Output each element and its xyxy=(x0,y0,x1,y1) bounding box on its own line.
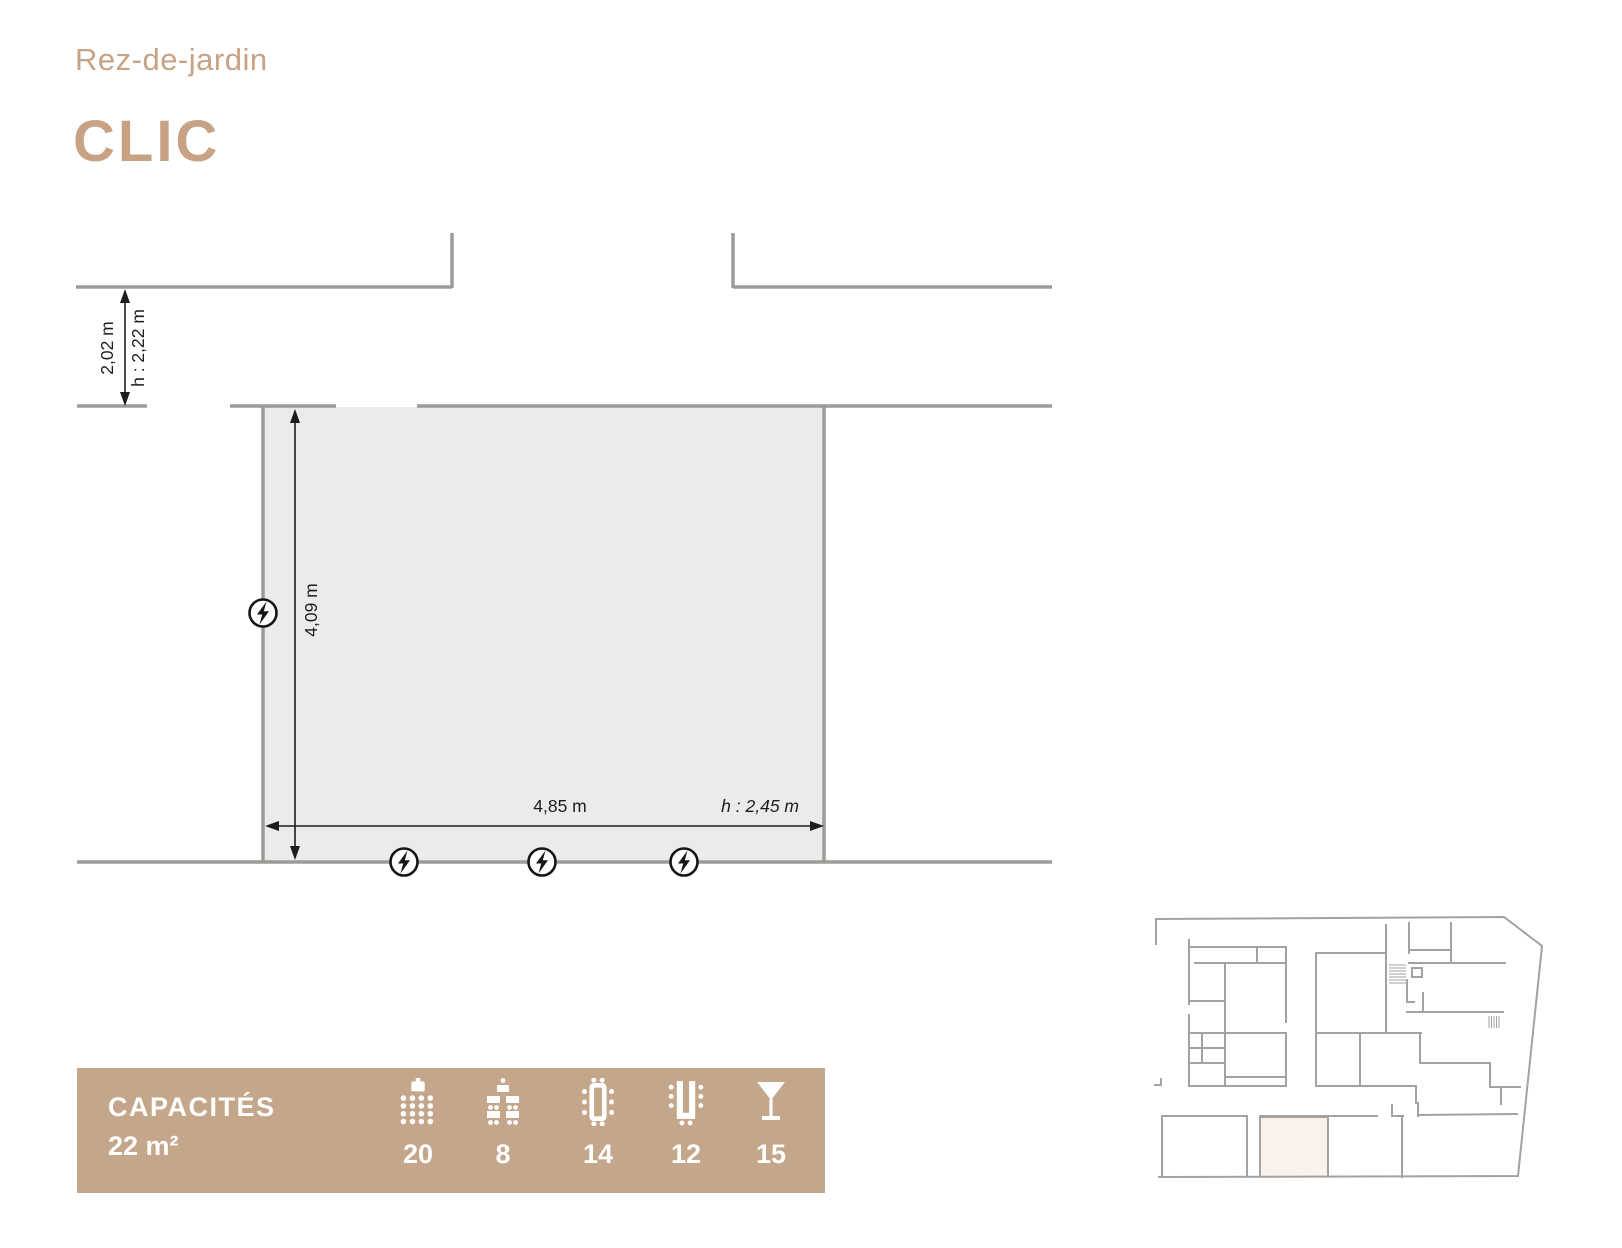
capacity-theatre: 20 xyxy=(383,1078,453,1168)
room-ceiling-dimension: h : 2,45 m xyxy=(721,796,799,816)
cocktail-icon xyxy=(756,1078,786,1126)
minimap-stairs-hatching xyxy=(1389,965,1499,1028)
power-outlet-icon xyxy=(391,849,418,876)
capacity-value: 12 xyxy=(651,1141,721,1168)
capacities-header: CAPACITÉS 22 m² xyxy=(108,1094,276,1160)
capacity-boardroom: 14 xyxy=(563,1078,633,1168)
corridor-height-dimension: h : 2,22 m xyxy=(128,309,148,387)
boardroom-icon xyxy=(580,1078,616,1126)
power-outlet-icon xyxy=(529,849,556,876)
capacity-cocktail: 15 xyxy=(736,1078,806,1168)
page: Rez-de-jardin CLIC 2,02 m h : 2,22 m 4,0… xyxy=(0,0,1622,1248)
room-area: 22 m² xyxy=(108,1133,276,1160)
capacity-value: 8 xyxy=(468,1141,538,1168)
power-outlet-icon xyxy=(250,600,277,627)
ushape-icon xyxy=(668,1078,704,1126)
capacities-title: CAPACITÉS xyxy=(108,1094,276,1121)
building-minimap xyxy=(1140,905,1560,1205)
room-width-dimension: 4,85 m xyxy=(533,796,587,816)
capacity-classroom: 8 xyxy=(468,1078,538,1168)
capacity-value: 20 xyxy=(383,1141,453,1168)
theater-icon xyxy=(399,1078,437,1126)
room-fill xyxy=(264,407,823,861)
minimap-highlighted-room xyxy=(1261,1118,1327,1176)
capacity-ushape: 12 xyxy=(651,1078,721,1168)
capacities-bar: CAPACITÉS 22 m² 20 xyxy=(77,1068,825,1193)
classroom-icon xyxy=(485,1078,521,1126)
capacity-value: 15 xyxy=(736,1141,806,1168)
corridor-width-dimension: 2,02 m xyxy=(97,321,117,375)
minimap-walls xyxy=(1155,917,1542,1177)
power-outlet-icon xyxy=(671,849,698,876)
capacity-value: 14 xyxy=(563,1141,633,1168)
room-depth-dimension: 4,09 m xyxy=(301,583,321,637)
